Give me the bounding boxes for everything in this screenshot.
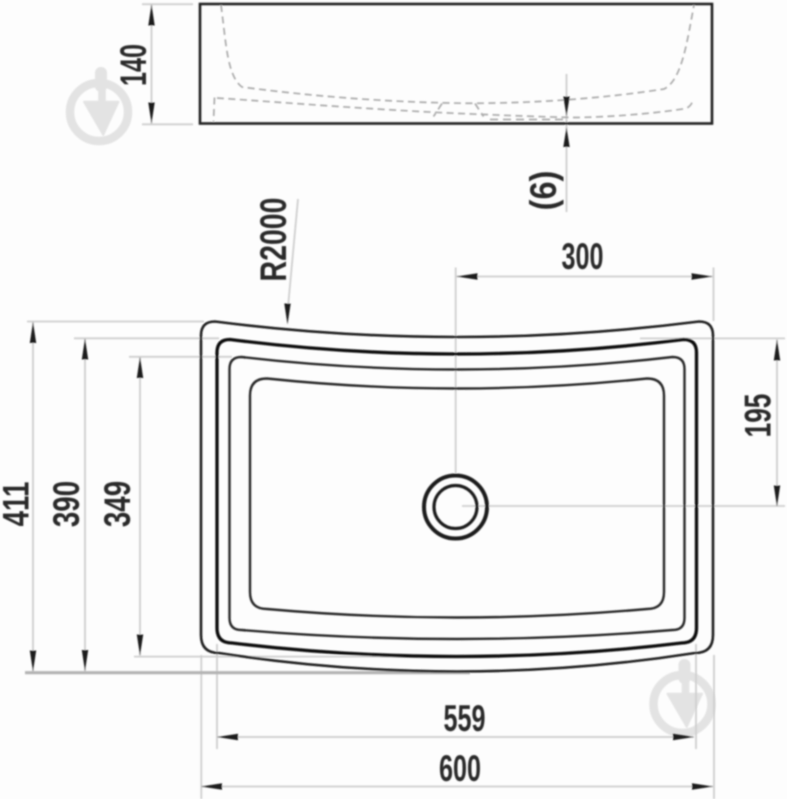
svg-text:300: 300	[562, 235, 604, 277]
svg-text:390: 390	[45, 481, 87, 527]
svg-text:349: 349	[96, 481, 138, 527]
svg-text:411: 411	[0, 482, 36, 527]
svg-text:600: 600	[439, 747, 481, 789]
svg-text:(6): (6)	[523, 171, 564, 211]
svg-text:559: 559	[444, 697, 486, 739]
svg-text:R2000: R2000	[252, 198, 293, 282]
svg-text:140: 140	[112, 44, 154, 86]
svg-text:195: 195	[737, 394, 779, 438]
